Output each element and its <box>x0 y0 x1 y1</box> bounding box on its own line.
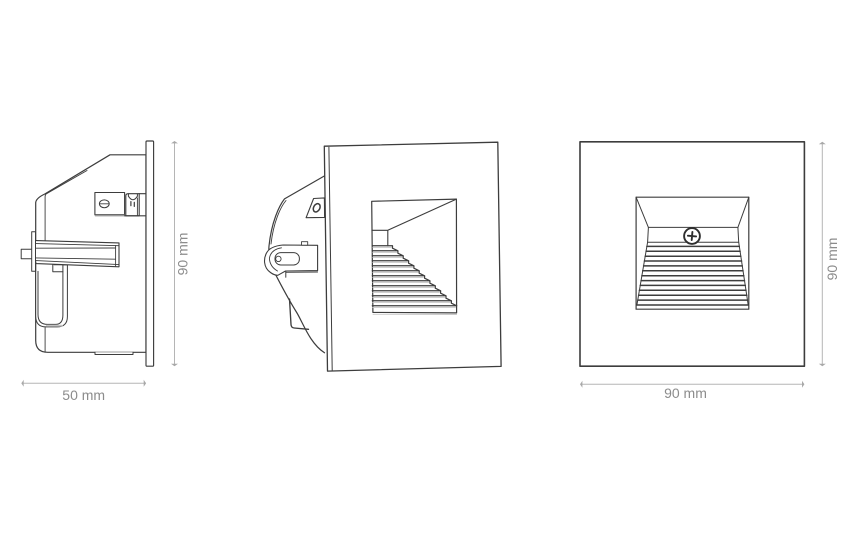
svg-text:50 mm: 50 mm <box>62 387 105 403</box>
svg-text:90 mm: 90 mm <box>664 385 707 401</box>
svg-text:90 mm: 90 mm <box>824 238 840 281</box>
svg-text:90 mm: 90 mm <box>174 233 190 276</box>
